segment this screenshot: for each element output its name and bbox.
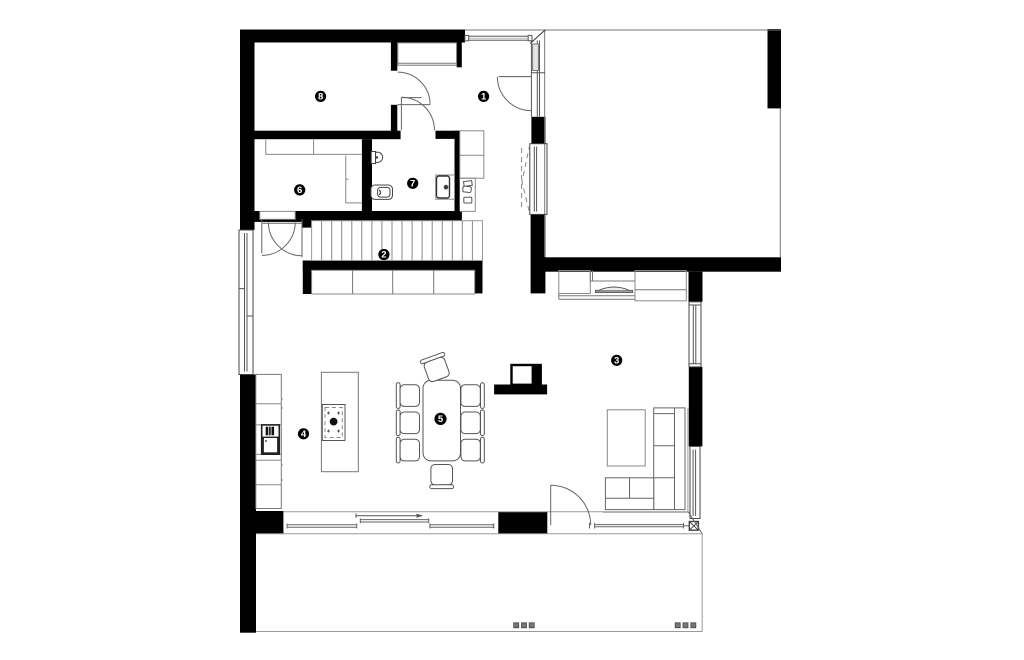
svg-text:2: 2 (381, 250, 386, 261)
svg-text:5: 5 (438, 414, 444, 425)
svg-text:4: 4 (301, 429, 307, 440)
svg-text:1: 1 (481, 91, 487, 102)
svg-text:3: 3 (614, 355, 619, 366)
svg-text:8: 8 (318, 91, 323, 102)
svg-text:7: 7 (410, 178, 415, 189)
svg-text:6: 6 (297, 185, 302, 196)
